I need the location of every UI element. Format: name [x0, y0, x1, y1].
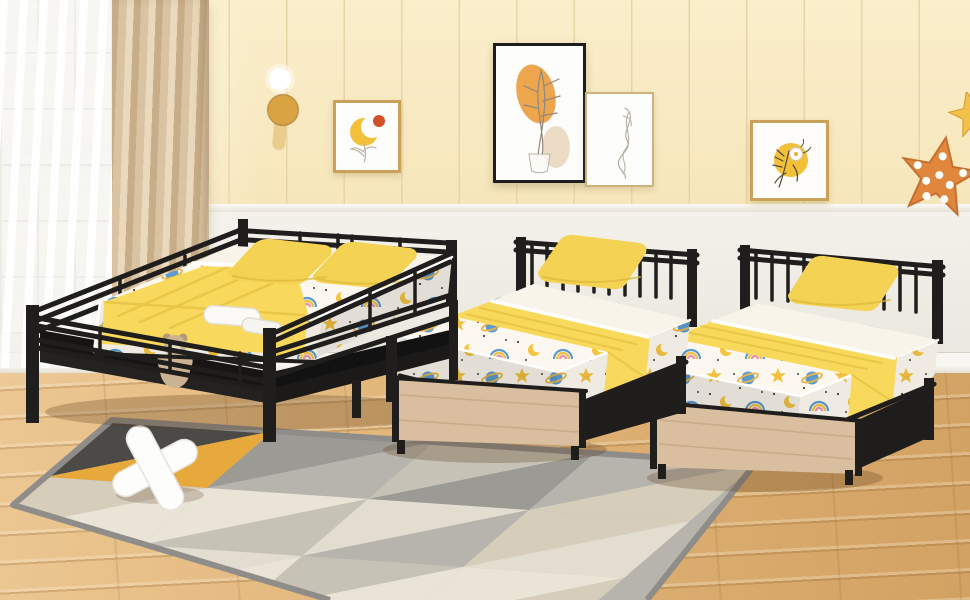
- bed-leg: [676, 356, 686, 414]
- kids-bedroom-photo: [0, 0, 970, 600]
- drawer-foot: [571, 446, 579, 460]
- drawer-foot: [845, 470, 853, 485]
- headboard-post: [687, 249, 697, 327]
- bed-leg: [26, 305, 39, 423]
- bed-leg: [352, 380, 361, 418]
- bed-leg: [263, 328, 276, 442]
- headboard-post: [932, 260, 943, 344]
- furniture-layer: [0, 0, 970, 600]
- bed-leg: [924, 378, 934, 440]
- drawer-foot: [397, 440, 405, 454]
- drawer-foot: [658, 464, 666, 479]
- bed-leg: [449, 300, 458, 380]
- bed-leg: [386, 336, 397, 402]
